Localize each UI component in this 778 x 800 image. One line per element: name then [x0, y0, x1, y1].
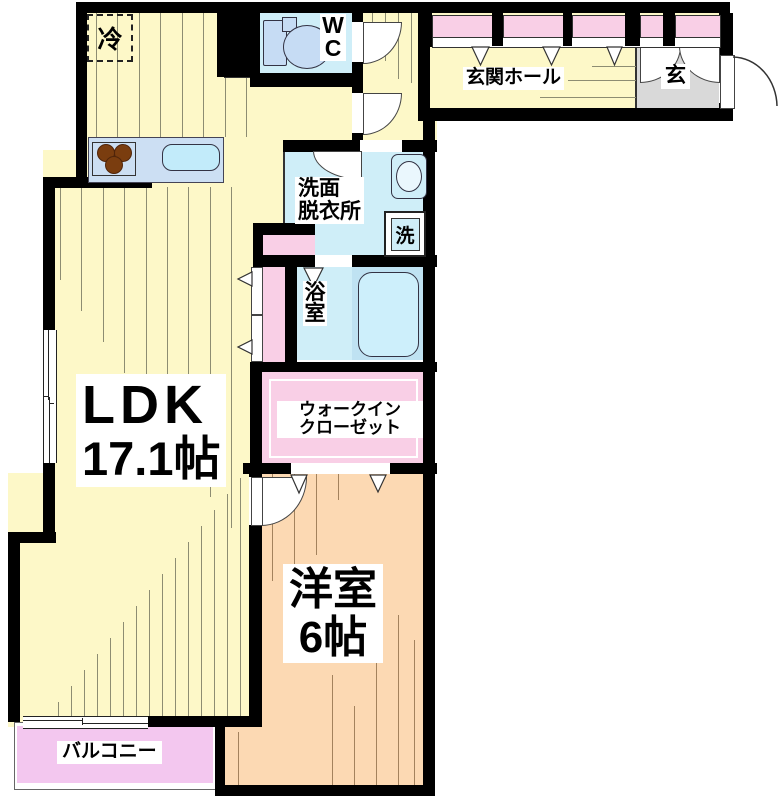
wall-segment: [215, 785, 435, 796]
room-label-genkan: 玄: [661, 64, 690, 89]
wall-segment: [250, 73, 363, 87]
floor-line: [81, 187, 82, 311]
cabinet-divider: [663, 13, 675, 46]
door-leaf: [251, 477, 263, 526]
wall-segment: [418, 37, 430, 108]
floor-line: [139, 13, 140, 137]
floor-line: [123, 622, 124, 716]
floor-line: [225, 78, 226, 137]
door-direction-triangle-icon: [471, 46, 490, 66]
wall-segment: [43, 177, 55, 330]
floor-line: [540, 97, 636, 98]
shoe-cabinet: [640, 15, 665, 39]
room-label-yokushitsu: 浴室: [303, 281, 327, 326]
cabinet-divider: [492, 13, 503, 46]
wall-segment: [253, 223, 263, 267]
hall-storage: [263, 235, 315, 255]
floor-line: [201, 526, 202, 716]
floor-line: [214, 510, 215, 716]
floor-line: [592, 66, 636, 67]
floor-line: [231, 187, 232, 528]
floor-line: [136, 606, 137, 716]
floor-line: [188, 542, 189, 716]
floor-line: [332, 675, 333, 785]
window-sash-tick: [82, 718, 83, 725]
wall-segment: [250, 362, 262, 473]
wall-segment: [719, 13, 733, 57]
floor-line: [146, 187, 147, 404]
wall-segment: [8, 532, 20, 722]
floor-line: [227, 494, 228, 716]
wic-door-triangle-icon: [369, 474, 387, 493]
wall-segment: [43, 463, 55, 537]
shoe-cabinet: [503, 15, 565, 39]
wall-segment: [76, 2, 730, 13]
wall-segment: [285, 267, 297, 372]
kitchen-sink-icon: [162, 144, 220, 171]
ldk-name: LDK: [82, 376, 220, 434]
senmen-line1: 洗面: [298, 178, 361, 201]
door-opening: [291, 463, 390, 474]
floor-line: [398, 615, 399, 785]
refrigerator-space: 冷: [87, 14, 133, 62]
door-opening: [352, 22, 363, 62]
floor-line: [162, 574, 163, 716]
ldk-size: 17.1帖: [82, 434, 220, 485]
wall-segment: [148, 716, 262, 727]
window-sash-tick: [49, 403, 54, 404]
floor-line: [376, 660, 377, 785]
ldk-closet: [263, 267, 285, 362]
window-sash: [49, 397, 50, 463]
closet-door-triangle-icon: [237, 271, 253, 287]
entrance-door-swing-arc-icon: [733, 57, 778, 107]
floor-line: [316, 473, 317, 555]
cabinet-divider: [563, 13, 572, 46]
floor-line: [149, 590, 150, 716]
room-label-wc: WC: [320, 14, 346, 61]
floor-line: [58, 702, 59, 716]
floor-line: [60, 187, 61, 280]
floor-line: [110, 638, 111, 716]
window-sash: [23, 720, 83, 721]
floor-line: [71, 686, 72, 716]
shoe-cabinet: [572, 15, 627, 39]
shoe-cabinet: [675, 15, 721, 39]
washer-inner: 洗: [391, 218, 420, 251]
wic-line2: クローゼット: [277, 419, 423, 437]
door-opening: [352, 93, 363, 133]
bathtub-icon: [358, 272, 419, 357]
window-sash-tick: [44, 396, 49, 397]
cabinet-divider: [625, 13, 640, 46]
senmen-line2: 脱衣所: [298, 201, 361, 224]
floor-line: [414, 640, 415, 785]
yoshitsu-floor: [223, 727, 263, 785]
floor-line: [175, 558, 176, 716]
floor-line: [411, 13, 412, 83]
floor-line: [182, 13, 183, 137]
room-label-yoshitsu: 洋室 6帖: [283, 564, 383, 663]
wall-segment: [263, 255, 315, 267]
floor-line: [203, 13, 204, 137]
door-direction-triangle-icon: [606, 46, 623, 66]
floor-line: [160, 13, 161, 137]
vanity-bowl: [396, 161, 422, 192]
wall-segment: [402, 140, 437, 152]
floor-line: [354, 706, 355, 785]
floor-line: [238, 732, 239, 785]
floor-plan: LDK 17.1帖 洋室 6帖 洗面 脱衣所 浴室 ウォークイン クローゼット …: [0, 0, 778, 800]
yoshitsu-size: 6帖: [289, 614, 377, 662]
wall-segment: [215, 716, 225, 796]
stove-burner: [105, 156, 123, 174]
room-label-senmen: 洗面 脱衣所: [295, 177, 364, 224]
closet-door-triangle-icon: [237, 339, 253, 355]
wall-segment: [76, 2, 87, 177]
floor-line: [246, 78, 247, 137]
room-label-ldk: LDK 17.1帖: [76, 374, 226, 487]
floor-line: [338, 473, 339, 500]
wall-segment: [352, 13, 363, 22]
floor-line: [124, 187, 125, 373]
wall-segment: [217, 2, 260, 77]
room-label-wic: ウォークイン クローゼット: [277, 401, 423, 438]
room-label-balcony: バルコニー: [57, 741, 162, 764]
wall-segment: [418, 108, 730, 121]
wall-segment: [352, 62, 363, 93]
floor-line: [240, 478, 241, 716]
window-sash: [82, 723, 148, 724]
wall-segment: [250, 362, 437, 372]
door-opening: [360, 140, 402, 152]
floor-line: [103, 187, 104, 342]
washer-space: 洗: [384, 211, 426, 257]
floor-line: [97, 654, 98, 716]
door-opening: [315, 255, 352, 267]
yoshitsu-name: 洋室: [289, 566, 377, 614]
shoe-cabinet: [432, 15, 494, 39]
floor-line: [84, 670, 85, 716]
window-sash: [48, 330, 49, 400]
wic-line1: ウォークイン: [277, 401, 423, 419]
door-direction-triangle-icon: [542, 46, 561, 66]
room-label-hall: 玄関ホール: [463, 67, 564, 90]
floor-line: [568, 80, 636, 81]
wic-door-triangle-icon: [290, 474, 308, 494]
